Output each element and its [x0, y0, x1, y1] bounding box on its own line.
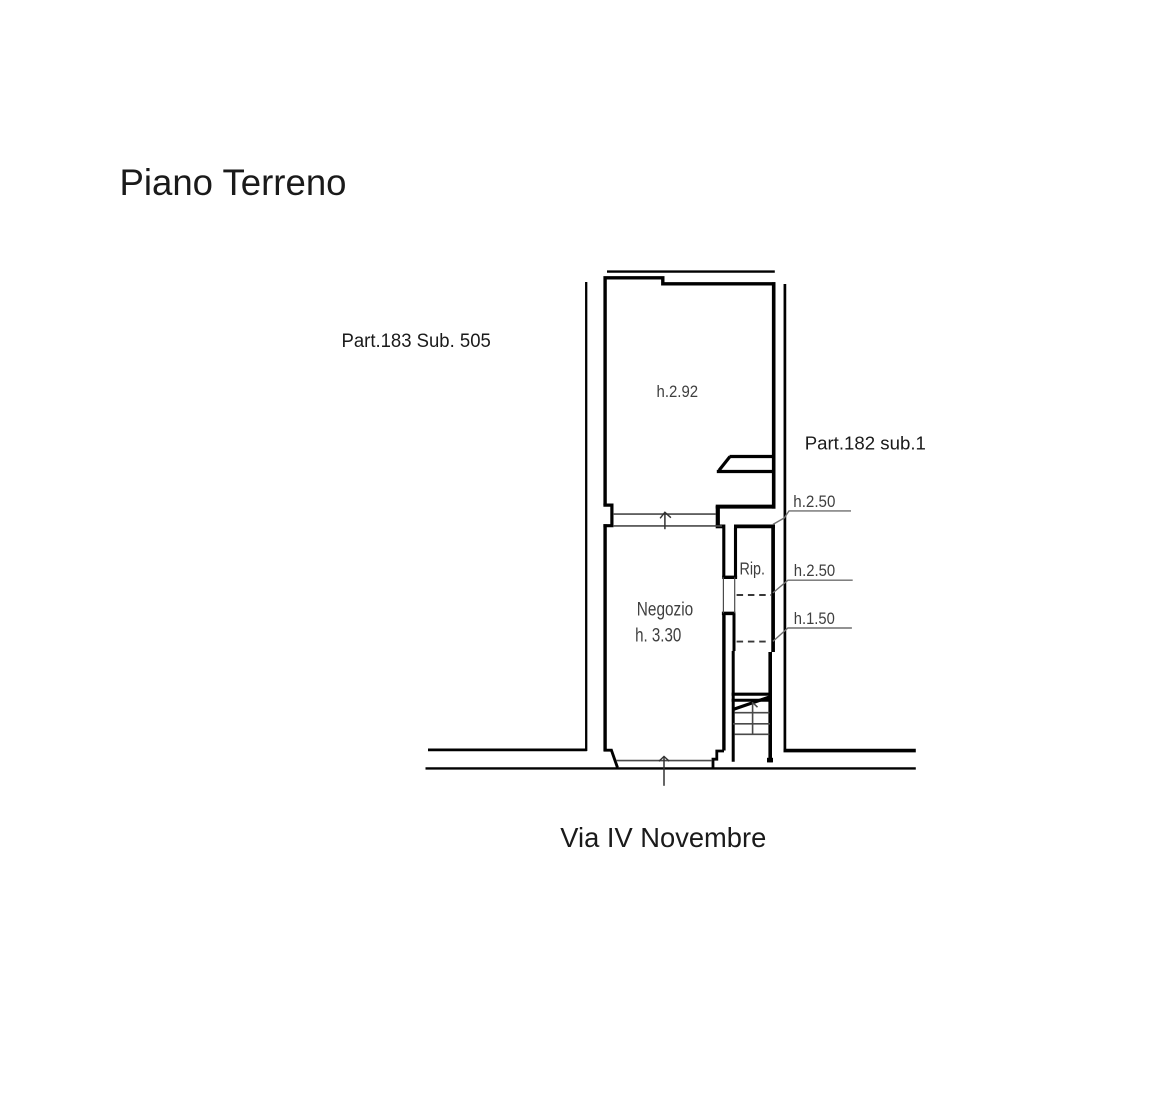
- svg-text:Part.182 sub.1: Part.182 sub.1: [805, 432, 926, 453]
- svg-text:h.2.50: h.2.50: [794, 562, 835, 580]
- svg-text:Via IV Novembre: Via IV Novembre: [560, 822, 766, 853]
- svg-text:Rip.: Rip.: [740, 559, 766, 579]
- svg-text:Negozio: Negozio: [637, 600, 693, 621]
- svg-text:h.1.50: h.1.50: [794, 610, 835, 628]
- svg-text:Piano Terreno: Piano Terreno: [120, 162, 347, 203]
- svg-text:Part.183 Sub. 505: Part.183 Sub. 505: [342, 331, 491, 352]
- svg-text:h.2.92: h.2.92: [657, 383, 699, 401]
- svg-text:h.2.50: h.2.50: [793, 493, 835, 511]
- svg-text:h. 3.30: h. 3.30: [635, 625, 681, 646]
